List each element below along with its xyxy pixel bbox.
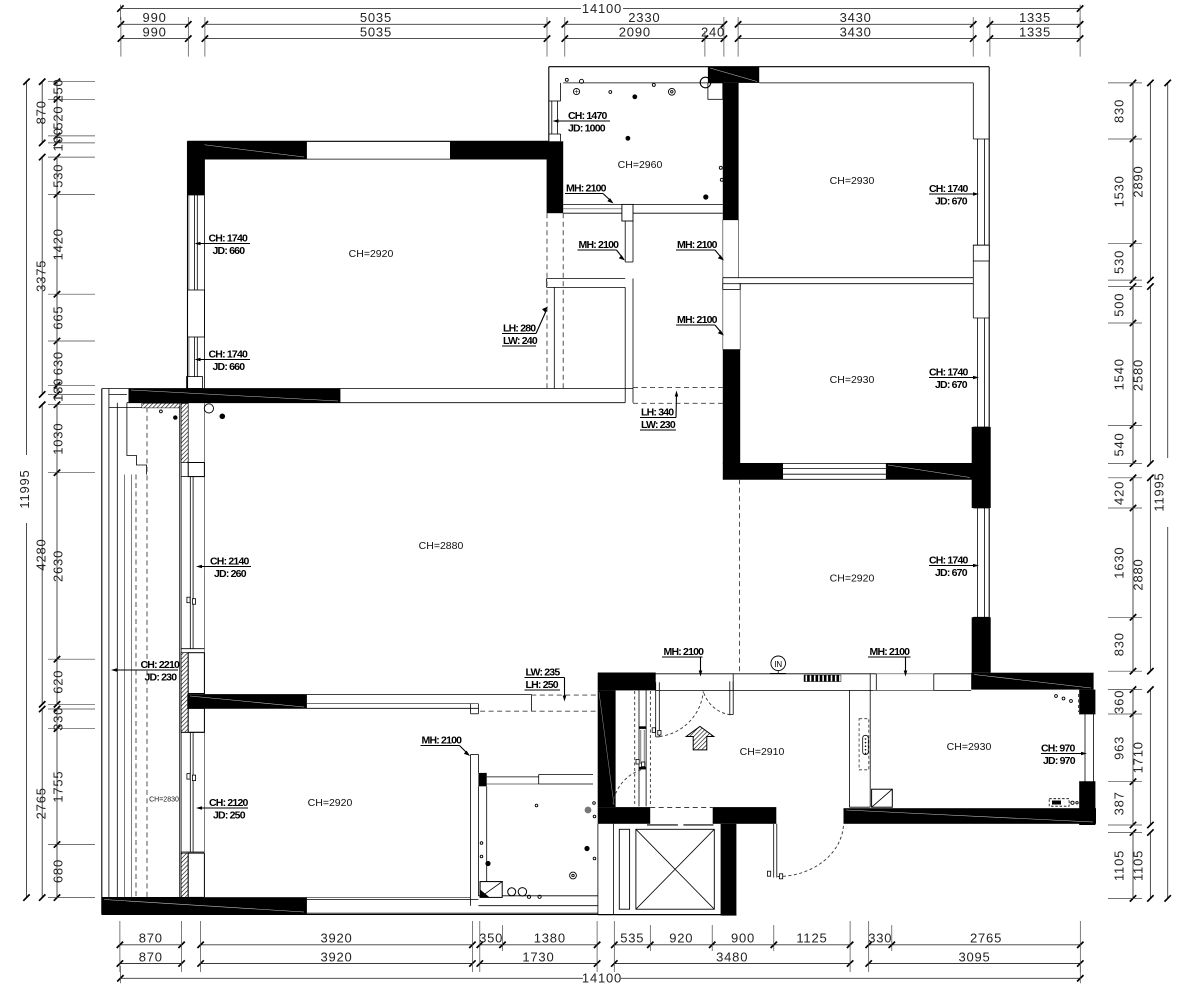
svg-text:1335: 1335 [1019, 10, 1051, 25]
svg-text:1105: 1105 [1112, 850, 1127, 881]
svg-text:JD: 970: JD: 970 [1043, 755, 1076, 767]
svg-text:1125: 1125 [796, 931, 827, 946]
svg-text:830: 830 [1112, 99, 1127, 123]
svg-text:500: 500 [1112, 293, 1127, 317]
svg-text:11995: 11995 [17, 469, 32, 508]
svg-text:920: 920 [669, 931, 693, 946]
svg-text:MH: 2100: MH: 2100 [579, 239, 620, 251]
svg-text:2630: 2630 [51, 550, 66, 582]
svg-text:870: 870 [33, 100, 48, 124]
svg-text:387: 387 [1112, 791, 1127, 815]
svg-text:2880: 2880 [1130, 558, 1145, 590]
svg-text:MH: 2100: MH: 2100 [664, 646, 705, 658]
svg-text:3430: 3430 [840, 10, 872, 25]
svg-text:CH: 1740: CH: 1740 [209, 349, 248, 361]
svg-text:990: 990 [143, 24, 167, 39]
svg-text:CH=2920: CH=2920 [349, 248, 394, 260]
svg-text:350: 350 [479, 931, 503, 946]
svg-text:3920: 3920 [320, 931, 352, 946]
svg-text:330: 330 [868, 931, 892, 946]
svg-text:CH: 2140: CH: 2140 [210, 556, 249, 568]
svg-text:5035: 5035 [360, 24, 392, 39]
svg-text:CH: 1470: CH: 1470 [568, 110, 607, 122]
svg-text:870: 870 [139, 949, 163, 964]
svg-text:MH: 2100: MH: 2100 [422, 735, 463, 747]
svg-text:3480: 3480 [716, 949, 748, 964]
svg-text:MH: 2100: MH: 2100 [677, 239, 718, 251]
svg-text:CH: 2120: CH: 2120 [209, 797, 248, 809]
svg-text:CH: 1740: CH: 1740 [929, 183, 968, 195]
svg-text:1380: 1380 [534, 931, 566, 946]
svg-text:JD: 230: JD: 230 [145, 672, 178, 684]
svg-text:665: 665 [51, 306, 66, 330]
svg-text:LW: 235: LW: 235 [526, 667, 561, 679]
svg-text:250: 250 [51, 78, 66, 102]
svg-text:330: 330 [51, 707, 66, 731]
svg-text:CH=2830: CH=2830 [149, 797, 179, 804]
svg-text:JD: 670: JD: 670 [935, 379, 968, 391]
svg-text:530: 530 [51, 164, 66, 188]
svg-text:1105: 1105 [1130, 850, 1145, 881]
svg-text:1530: 1530 [1112, 175, 1127, 207]
svg-text:3375: 3375 [33, 260, 48, 292]
svg-text:4280: 4280 [33, 538, 48, 570]
svg-text:CH: 2210: CH: 2210 [141, 659, 180, 671]
svg-text:JD: 250: JD: 250 [213, 810, 246, 822]
svg-text:MH: 2100: MH: 2100 [870, 646, 911, 658]
svg-text:CH=2960: CH=2960 [618, 159, 663, 171]
svg-text:1755: 1755 [51, 771, 66, 803]
svg-text:520: 520 [51, 106, 66, 130]
svg-text:1730: 1730 [522, 949, 554, 964]
svg-text:LH: 340: LH: 340 [641, 407, 674, 419]
svg-text:100: 100 [51, 127, 66, 151]
svg-text:JD: 660: JD: 660 [213, 245, 246, 257]
svg-text:14100: 14100 [582, 971, 622, 986]
svg-text:5035: 5035 [360, 10, 392, 25]
svg-text:JD: 260: JD: 260 [214, 568, 247, 580]
svg-text:JD: 1000: JD: 1000 [568, 123, 606, 135]
svg-text:3430: 3430 [840, 24, 872, 39]
svg-text:535: 535 [620, 931, 644, 946]
svg-text:870: 870 [139, 931, 163, 946]
svg-text:11995: 11995 [1152, 472, 1167, 511]
svg-text:2330: 2330 [628, 10, 660, 25]
svg-text:LH: 280: LH: 280 [503, 323, 536, 335]
svg-text:CH=2920: CH=2920 [830, 573, 875, 585]
svg-text:LW: 230: LW: 230 [641, 419, 676, 431]
svg-text:360: 360 [1112, 690, 1127, 714]
svg-text:JD: 670: JD: 670 [935, 567, 968, 579]
svg-text:2580: 2580 [1130, 359, 1145, 391]
svg-text:1710: 1710 [1130, 741, 1145, 773]
svg-text:530: 530 [1112, 250, 1127, 274]
svg-text:IN: IN [774, 660, 782, 669]
svg-text:CH=2920: CH=2920 [308, 797, 353, 809]
svg-text:JD: 670: JD: 670 [935, 196, 968, 208]
svg-text:2090: 2090 [619, 24, 651, 39]
svg-text:2765: 2765 [33, 787, 48, 819]
svg-text:540: 540 [1112, 432, 1127, 456]
svg-text:1420: 1420 [51, 228, 66, 260]
svg-text:1335: 1335 [1019, 24, 1051, 39]
svg-text:1540: 1540 [1112, 358, 1127, 390]
svg-text:130: 130 [51, 378, 66, 402]
svg-text:830: 830 [1112, 632, 1127, 656]
svg-text:1630: 1630 [1112, 547, 1127, 579]
svg-text:JD: 660: JD: 660 [213, 361, 246, 373]
svg-text:1030: 1030 [51, 423, 66, 455]
svg-text:990: 990 [143, 10, 167, 25]
svg-text:CH=2930: CH=2930 [830, 175, 875, 187]
svg-text:2765: 2765 [970, 931, 1002, 946]
svg-text:14100: 14100 [582, 1, 622, 16]
svg-text:CH=2910: CH=2910 [740, 746, 785, 758]
svg-text:900: 900 [731, 931, 755, 946]
svg-text:3095: 3095 [958, 949, 990, 964]
svg-text:LH: 250: LH: 250 [526, 679, 559, 691]
svg-text:963: 963 [1112, 736, 1127, 760]
svg-text:2890: 2890 [1130, 165, 1145, 197]
svg-text:CH=2930: CH=2930 [947, 741, 992, 753]
svg-text:LW: 240: LW: 240 [503, 335, 538, 347]
svg-text:MH: 2100: MH: 2100 [566, 183, 607, 195]
svg-text:CH: 1740: CH: 1740 [929, 555, 968, 567]
svg-text:CH=2930: CH=2930 [830, 374, 875, 386]
svg-text:630: 630 [51, 351, 66, 375]
svg-text:CH: 1740: CH: 1740 [929, 367, 968, 379]
svg-text:680: 680 [51, 859, 66, 883]
svg-text:MH: 2100: MH: 2100 [677, 314, 718, 326]
svg-text:420: 420 [1112, 481, 1127, 505]
svg-text:3920: 3920 [320, 949, 352, 964]
svg-text:CH: 1740: CH: 1740 [209, 233, 248, 245]
svg-text:620: 620 [51, 670, 66, 694]
svg-text:CH=2880: CH=2880 [419, 540, 464, 552]
svg-text:CH: 970: CH: 970 [1041, 743, 1075, 755]
